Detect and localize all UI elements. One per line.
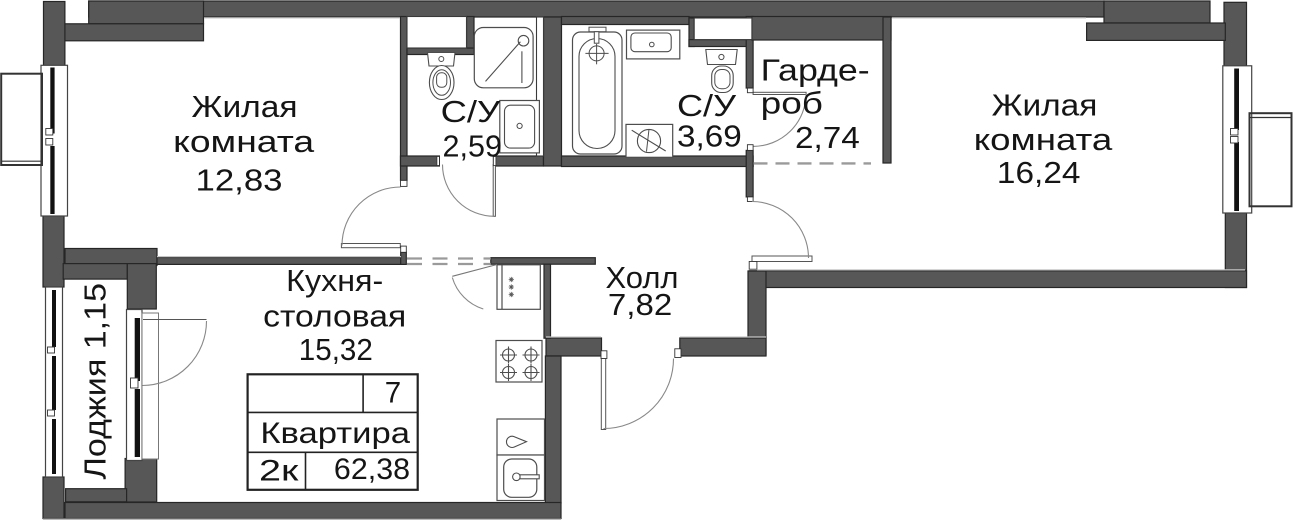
svg-text:столовая: столовая	[263, 299, 406, 334]
svg-text:16,24: 16,24	[997, 155, 1081, 190]
svg-text:2к: 2к	[259, 455, 300, 488]
svg-text:2,59: 2,59	[443, 128, 503, 163]
svg-text:С/У: С/У	[441, 94, 501, 129]
svg-text:Жилая: Жилая	[192, 89, 298, 124]
svg-text:комната: комната	[173, 124, 315, 159]
svg-text:Жилая: Жилая	[992, 88, 1098, 123]
svg-text:Лоджия 1,15: Лоджия 1,15	[78, 283, 113, 480]
svg-text:Кухня-: Кухня-	[286, 263, 383, 298]
svg-text:комната: комната	[974, 122, 1113, 157]
svg-text:7: 7	[385, 377, 401, 410]
svg-text:Гарде-: Гарде-	[761, 53, 870, 88]
svg-text:роб: роб	[761, 86, 823, 121]
svg-text:2,74: 2,74	[795, 120, 860, 155]
svg-text:7,82: 7,82	[608, 287, 672, 322]
svg-text:15,32: 15,32	[299, 332, 373, 367]
svg-text:12,83: 12,83	[196, 163, 283, 198]
svg-text:3,69: 3,69	[677, 119, 742, 154]
svg-text:Квартира: Квартира	[260, 417, 410, 450]
svg-text:62,38: 62,38	[334, 453, 410, 486]
